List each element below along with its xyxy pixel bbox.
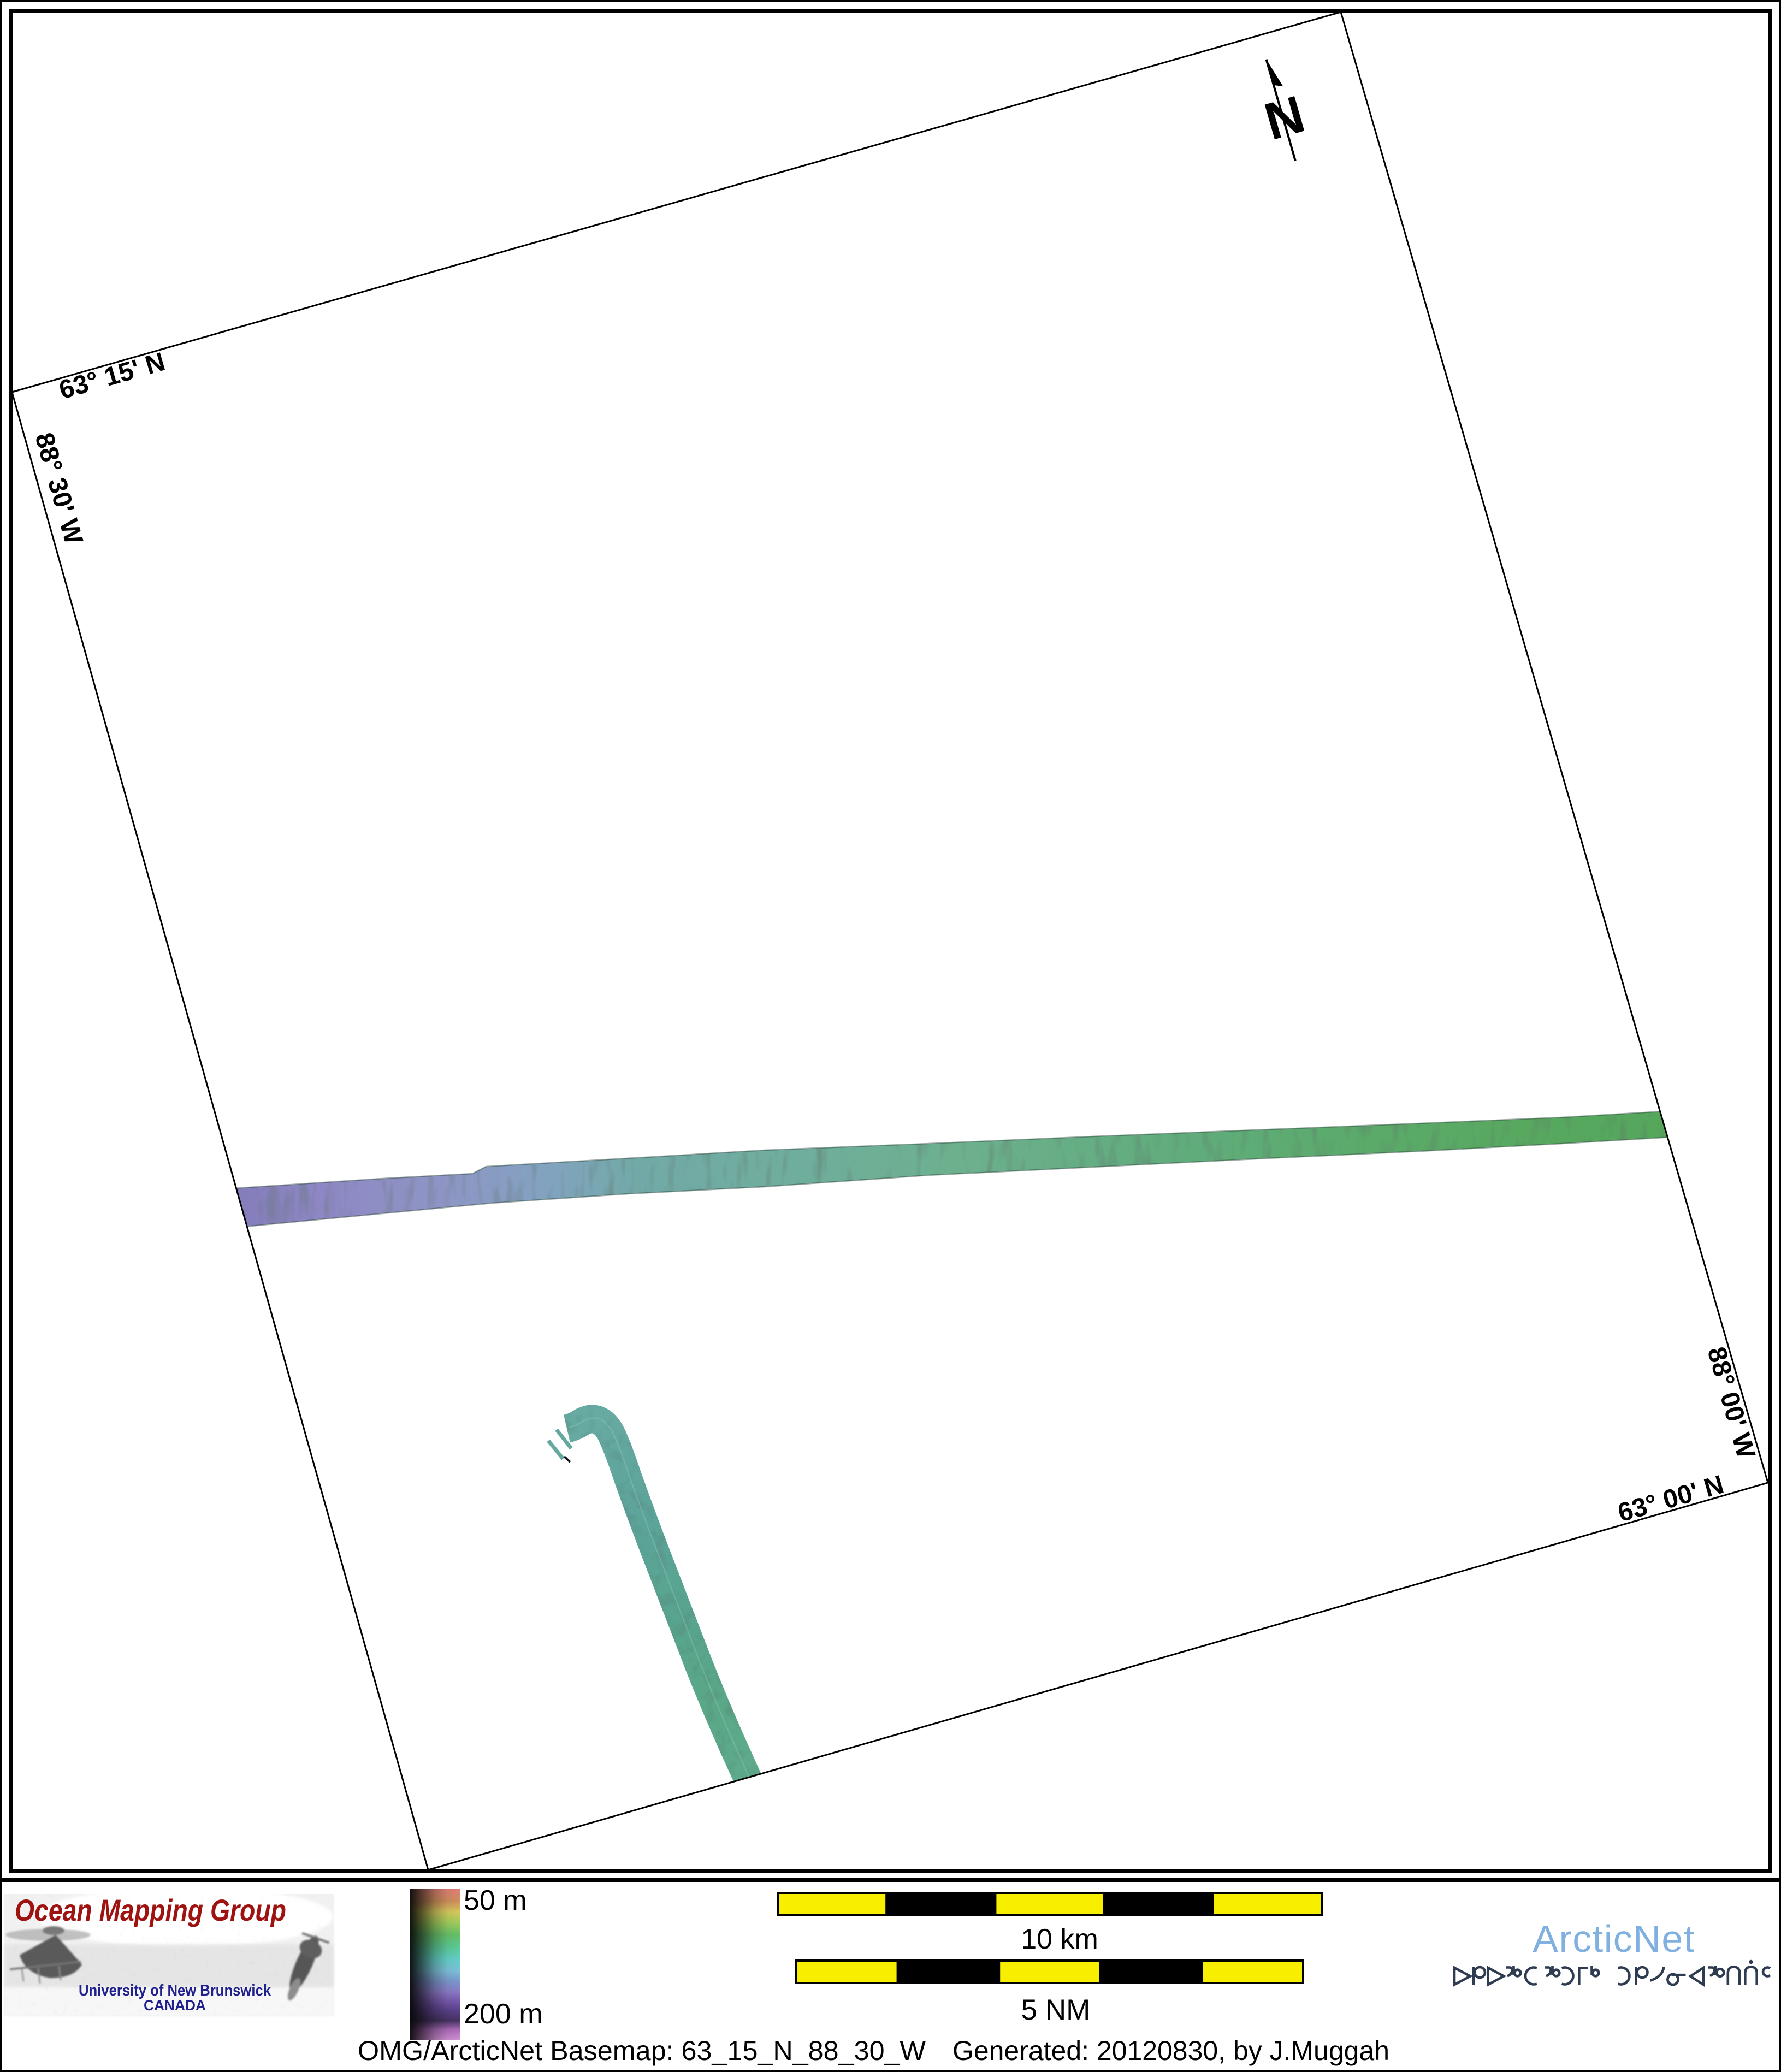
svg-text:ArcticNet: ArcticNet	[1533, 1917, 1695, 1960]
svg-text:200 m: 200 m	[464, 1998, 543, 2030]
svg-text:63° 00' N: 63° 00' N	[1614, 1470, 1727, 1528]
svg-text:88° 30' W: 88° 30' W	[29, 430, 88, 548]
svg-text:OMG/ArcticNet Basemap: 63_15_N: OMG/ArcticNet Basemap: 63_15_N_88_30_W	[358, 2035, 926, 2066]
svg-text:CANADA: CANADA	[144, 1997, 206, 2014]
svg-text:10 km: 10 km	[1021, 1923, 1098, 1955]
svg-text:5 NM: 5 NM	[1021, 1994, 1091, 2026]
svg-text:Generated: 20120830, by J.Mugg: Generated: 20120830, by J.Muggah	[952, 2035, 1389, 2066]
svg-text:88° 00' W: 88° 00' W	[1701, 1344, 1760, 1463]
svg-text:Ocean Mapping Group: Ocean Mapping Group	[15, 1893, 286, 1927]
svg-text:50 m: 50 m	[464, 1885, 527, 1916]
svg-text:N: N	[1258, 85, 1311, 151]
svg-text:63° 15' N: 63° 15' N	[56, 347, 168, 405]
